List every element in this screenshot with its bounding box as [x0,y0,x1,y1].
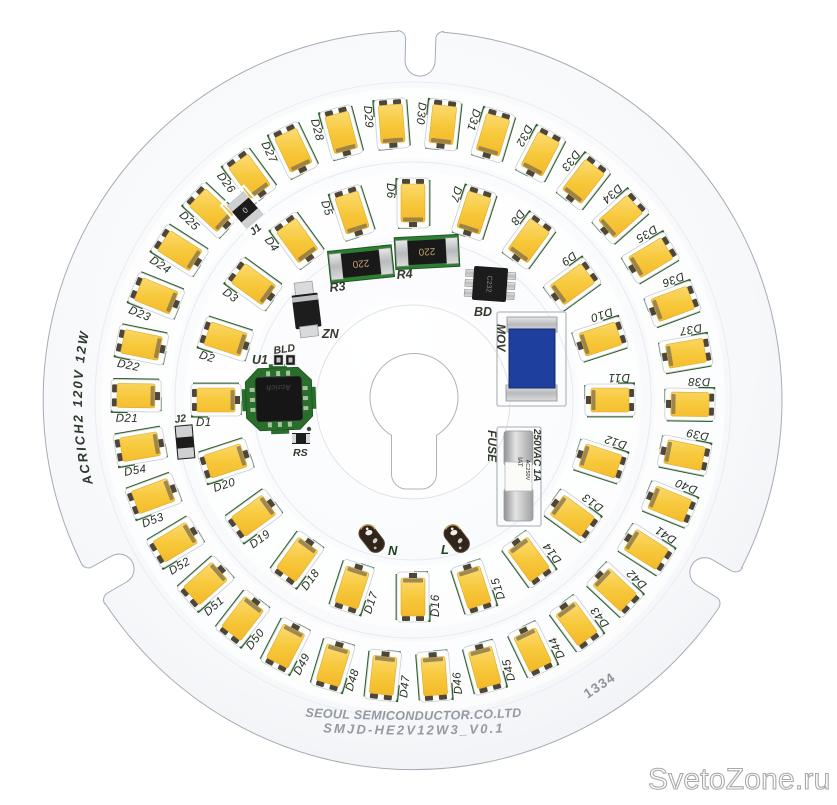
svg-text:ZN: ZN [321,327,340,341]
svg-text:BD: BD [474,305,492,319]
svg-text:D38: D38 [688,375,711,387]
svg-text:Acrich: Acrich [266,383,292,393]
svg-text:D21: D21 [116,413,139,425]
svg-text:D6: D6 [384,183,396,199]
svg-text:J2: J2 [174,412,187,426]
svg-text:R4: R4 [396,267,413,282]
svg-text:D11: D11 [608,371,630,383]
svg-text:SvetoZone.ru: SvetoZone.ru [648,763,831,796]
svg-text:SMJD-HE2V12W3_V0.1: SMJD-HE2V12W3_V0.1 [323,720,505,737]
svg-text:D29: D29 [361,105,375,129]
svg-text:L: L [441,542,449,557]
svg-text:250VAC 1A: 250VAC 1A [531,428,542,482]
svg-text:U1: U1 [252,353,268,367]
svg-text:D16: D16 [430,594,442,617]
svg-text:C232: C232 [484,275,492,292]
svg-text:FUSE: FUSE [485,430,499,463]
svg-text:RS: RS [293,447,308,459]
svg-text:R3: R3 [329,279,347,295]
svg-text:AC250V: AC250V [524,460,530,481]
svg-text:D30: D30 [413,102,427,126]
svg-text:D47: D47 [398,675,412,699]
svg-text:N: N [388,543,398,558]
svg-text:D46: D46 [451,671,465,695]
svg-text:D1: D1 [196,417,212,429]
svg-text:MOV: MOV [494,324,508,352]
svg-text:IAT: IAT [516,457,523,467]
svg-text:220: 220 [352,257,370,270]
svg-text:220: 220 [418,245,436,257]
